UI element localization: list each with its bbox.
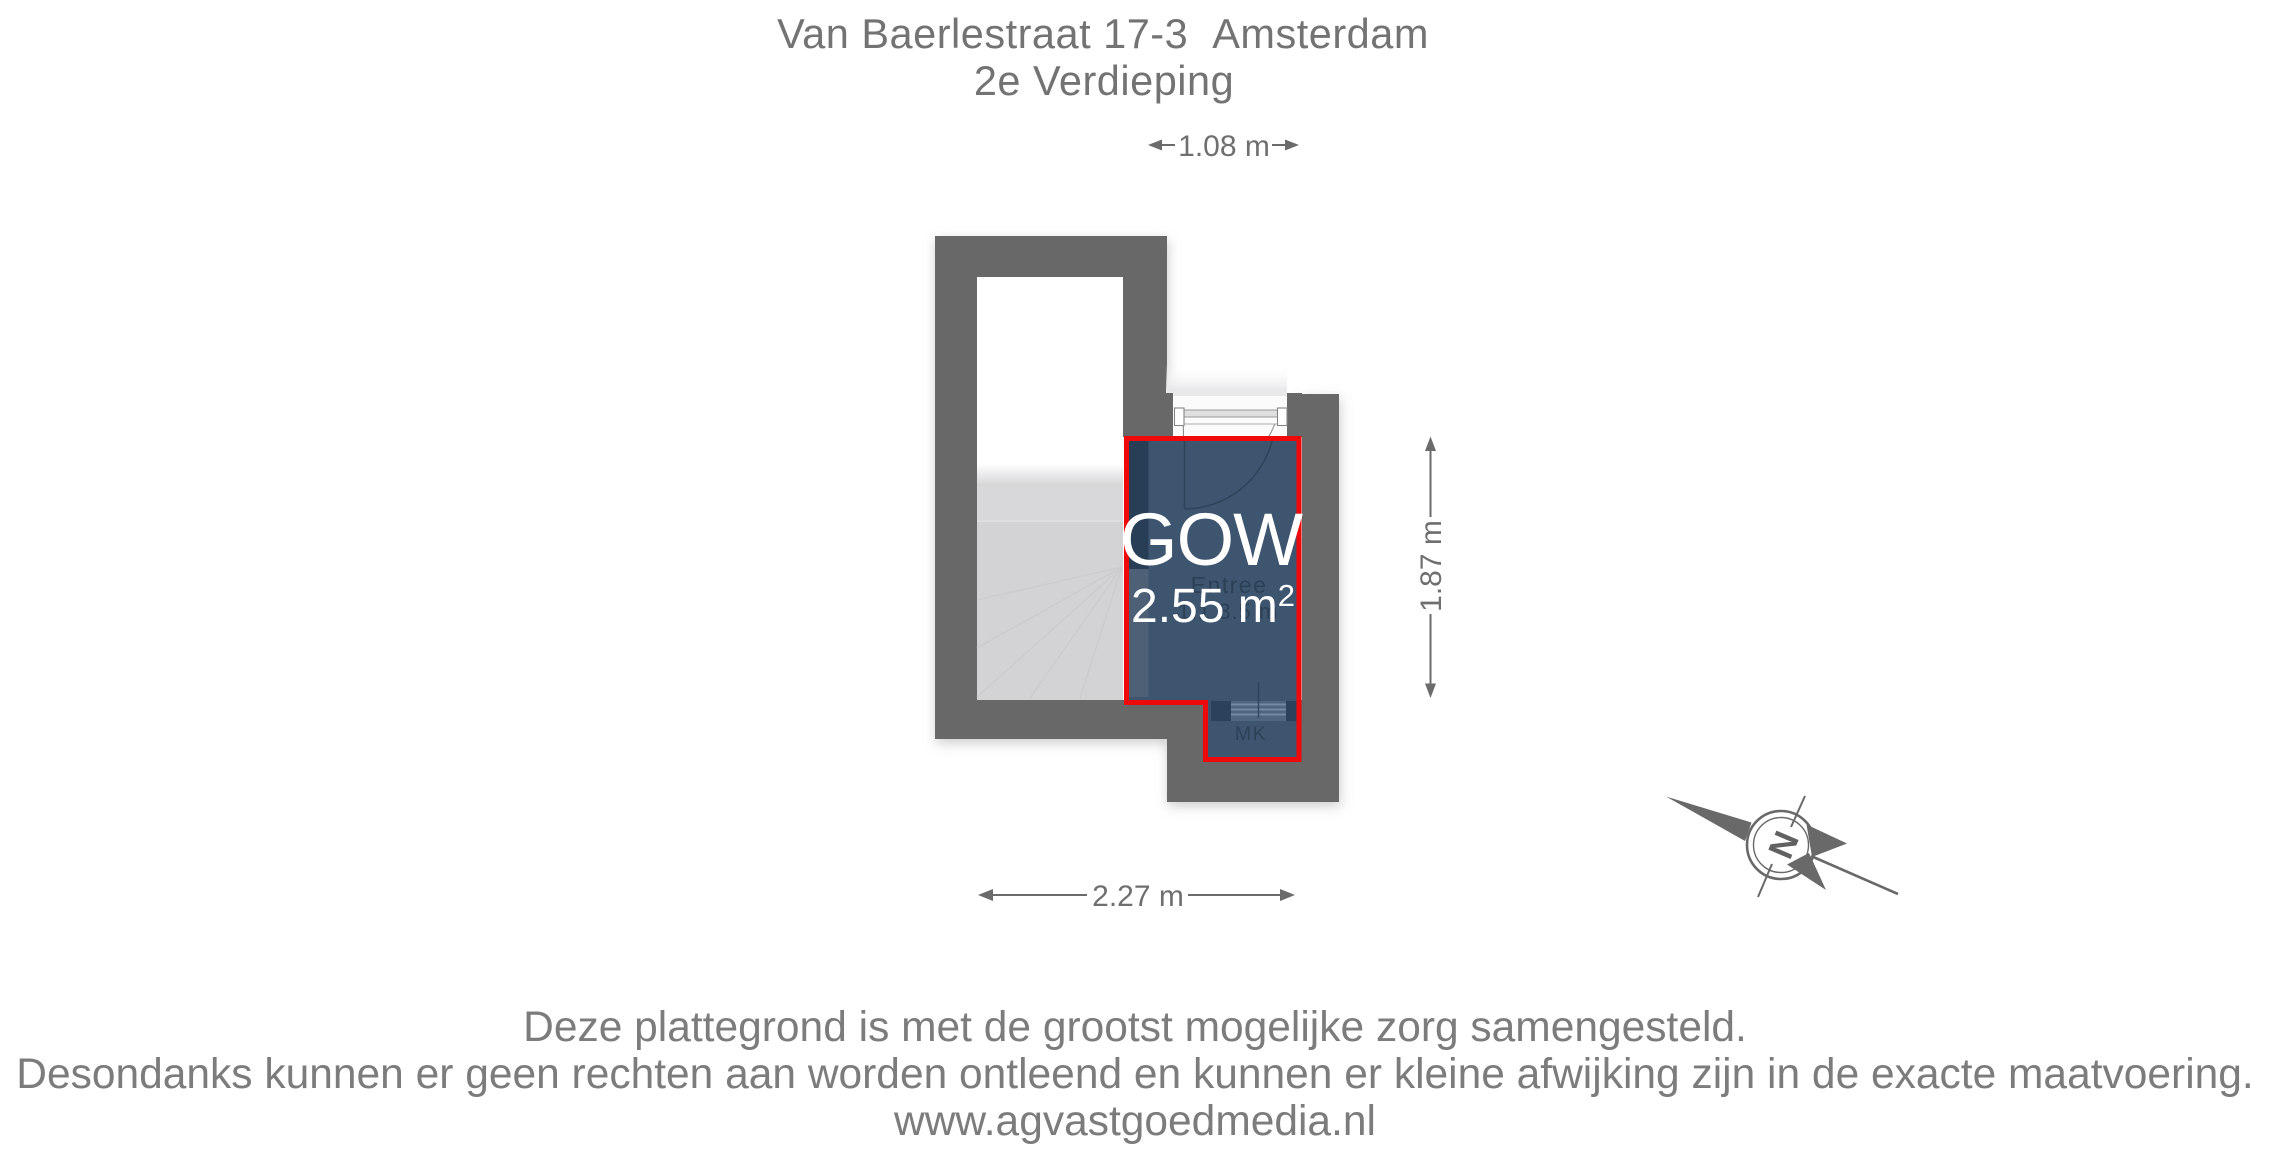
svg-text:2.55 m2: 2.55 m2 [1131,578,1295,633]
svg-text:Deze plattegrond is met de gro: Deze plattegrond is met de grootst mogel… [523,1004,1747,1051]
svg-text:MK: MK [1235,723,1267,745]
svg-text:2e Verdieping: 2e Verdieping [974,57,1234,104]
svg-text:1.87 m: 1.87 m [1415,520,1448,612]
svg-text:GOW: GOW [1120,498,1303,581]
svg-text:Van Baerlestraat 17-3 Amsterd: Van Baerlestraat 17-3 Amsterdam [777,10,1429,57]
svg-text:Desondanks kunnen er geen rech: Desondanks kunnen er geen rechten aan wo… [16,1051,2253,1098]
svg-text:www.agvastgoedmedia.nl: www.agvastgoedmedia.nl [893,1098,1376,1145]
svg-text:2.27 m: 2.27 m [1092,880,1184,913]
svg-text:1.08 m: 1.08 m [1178,130,1270,163]
